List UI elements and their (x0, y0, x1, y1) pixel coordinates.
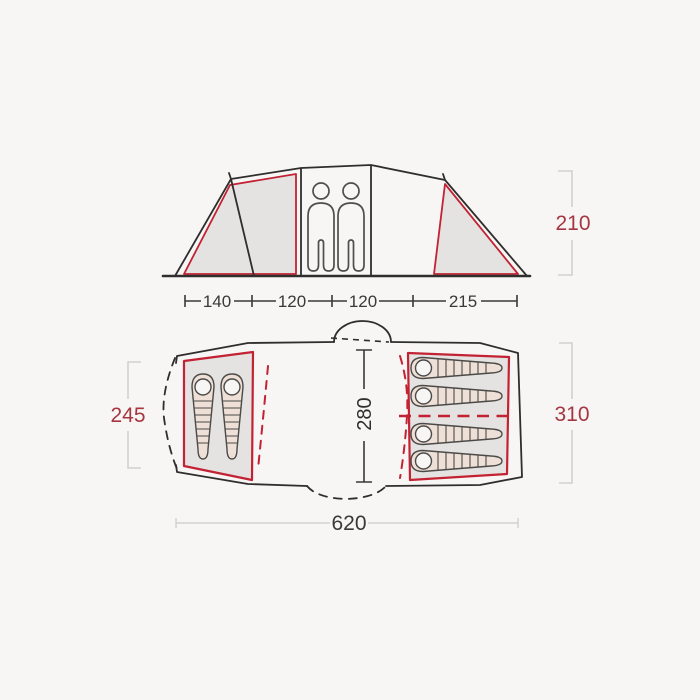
width-dim-label-3: 120 (349, 292, 377, 311)
left-door-flap-dashed (163, 358, 177, 469)
front-door-threshold-dashed (331, 338, 389, 342)
height-dim-label: 210 (555, 212, 590, 235)
rear-door-dashed (307, 486, 386, 499)
width-dim-label-2: 120 (278, 292, 306, 311)
total-length-dim-label: 620 (331, 512, 366, 535)
left-depth-dim-label: 245 (110, 404, 145, 427)
person-icon (338, 183, 364, 271)
left-cabin-door-dashed (258, 366, 268, 469)
side-elevation-view: 210 140 120 120 215 (163, 165, 591, 311)
floor-plan-view: 280 245 310 620 (110, 321, 589, 535)
tent-diagram-canvas: 210 140 120 120 215 (0, 0, 700, 700)
tent-diagram: 210 140 120 120 215 (0, 0, 700, 700)
left-bedroom-side-shape (184, 174, 296, 274)
person-icon (308, 183, 334, 271)
right-depth-dim-label: 310 (554, 403, 589, 426)
width-dim-label-1: 140 (203, 292, 231, 311)
width-dim-label-4: 215 (449, 292, 477, 311)
inner-width-dim-label: 280 (354, 397, 376, 430)
right-bedroom-side-shape (434, 184, 518, 274)
